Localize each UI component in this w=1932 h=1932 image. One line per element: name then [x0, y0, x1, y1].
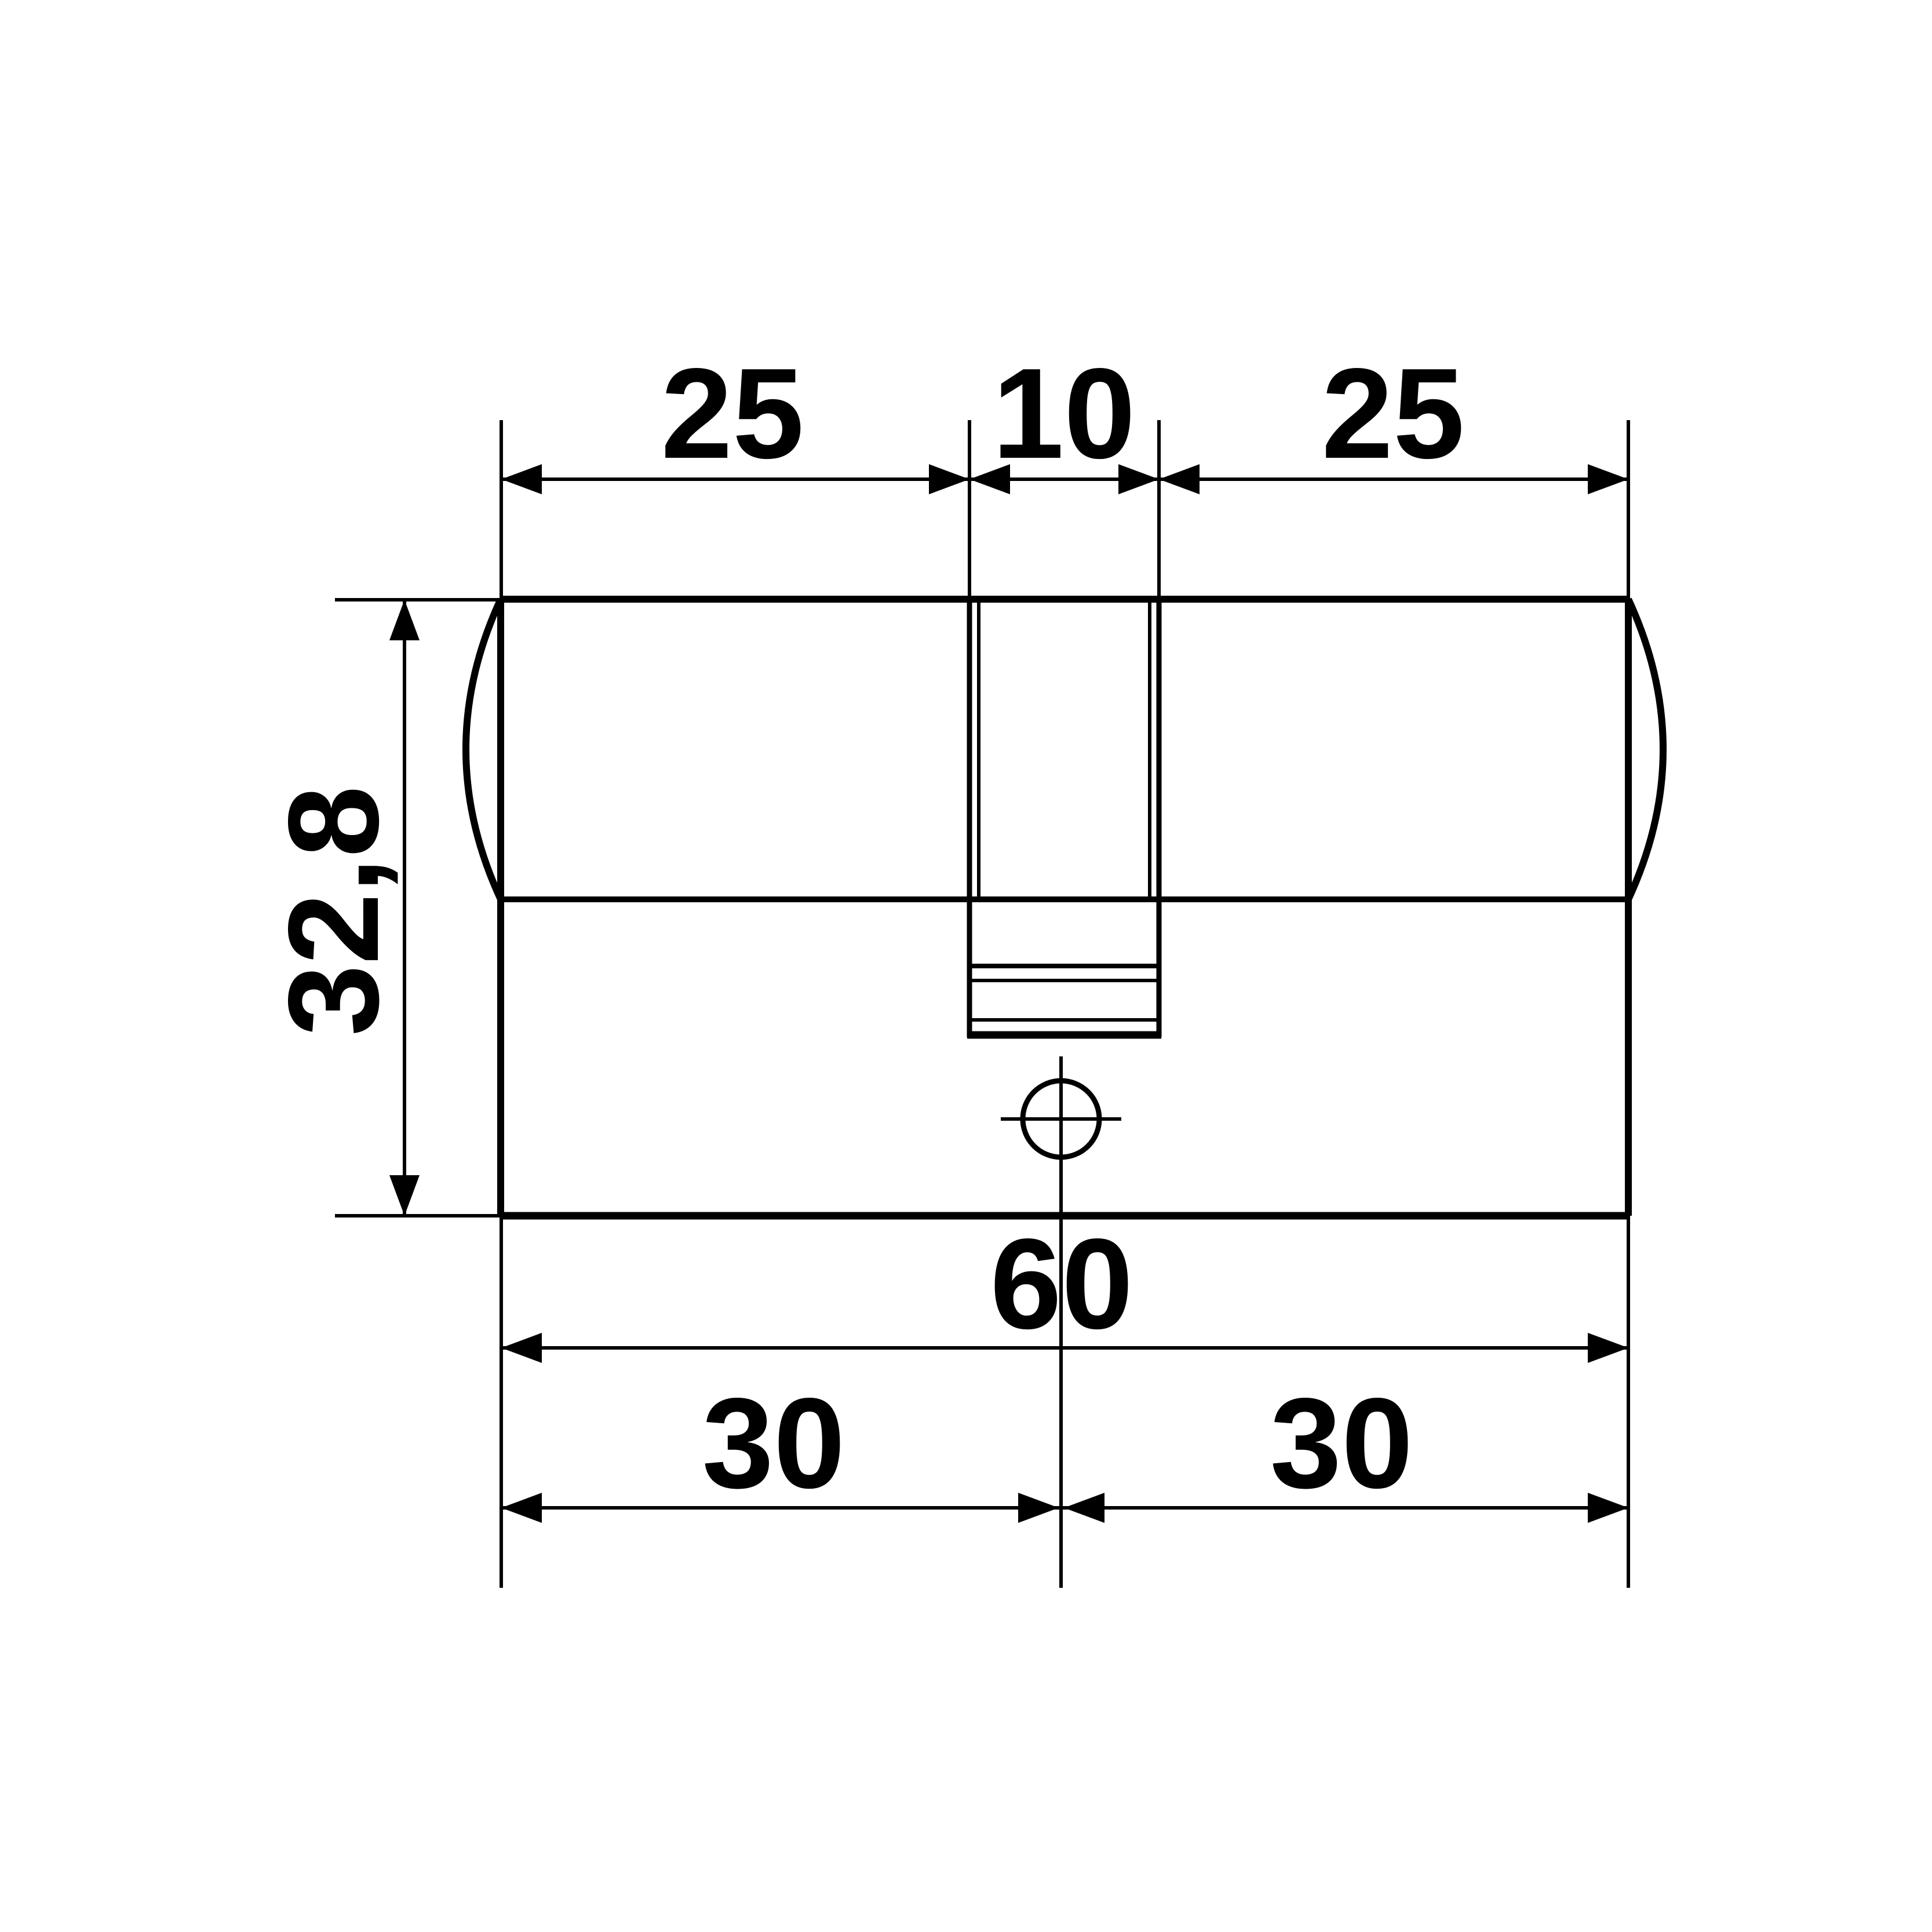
arrow-total-right [1588, 1333, 1628, 1363]
dim-label-height: 32,8 [262, 786, 406, 1036]
dim-label-bottom-right: 30 [1270, 1372, 1413, 1515]
dimension-top: 25 10 25 [501, 342, 1628, 494]
arrow-left-30-left [501, 1493, 542, 1523]
cam-section [967, 599, 1161, 1037]
dimension-height: 32,8 [262, 600, 420, 1216]
drawing-canvas: 25 10 25 32,8 60 30 30 [0, 0, 1932, 1932]
dim-label-top-right: 25 [1322, 342, 1465, 486]
dim-label-total: 60 [990, 1212, 1133, 1356]
dim-label-top-left: 25 [661, 342, 804, 486]
cylinder-technical-drawing: 25 10 25 32,8 60 30 30 [0, 0, 1932, 1932]
arrow-height-top [389, 600, 420, 640]
arrow-top-right-25-left [1159, 464, 1200, 494]
arrow-height-bottom [389, 1175, 420, 1216]
extension-lines [335, 420, 1628, 1588]
dim-label-top-middle: 10 [993, 342, 1136, 486]
arrow-top-left-25-right [929, 464, 969, 494]
cylinder-body [466, 599, 1663, 1216]
arrow-right-30-left [1064, 1493, 1104, 1523]
arrow-total-left [501, 1333, 542, 1363]
arrow-right-30-right [1588, 1493, 1628, 1523]
arrow-top-right-25-right [1588, 464, 1628, 494]
arrow-left-30-right [1018, 1493, 1059, 1523]
body-left-end-arc [466, 599, 501, 899]
arrow-top-left-25-left [501, 464, 542, 494]
dim-label-bottom-left: 30 [702, 1372, 845, 1515]
dimension-bottom-halves: 30 30 [501, 1372, 1628, 1523]
dimension-bottom-total: 60 [501, 1212, 1628, 1363]
body-right-end-arc [1628, 599, 1663, 899]
